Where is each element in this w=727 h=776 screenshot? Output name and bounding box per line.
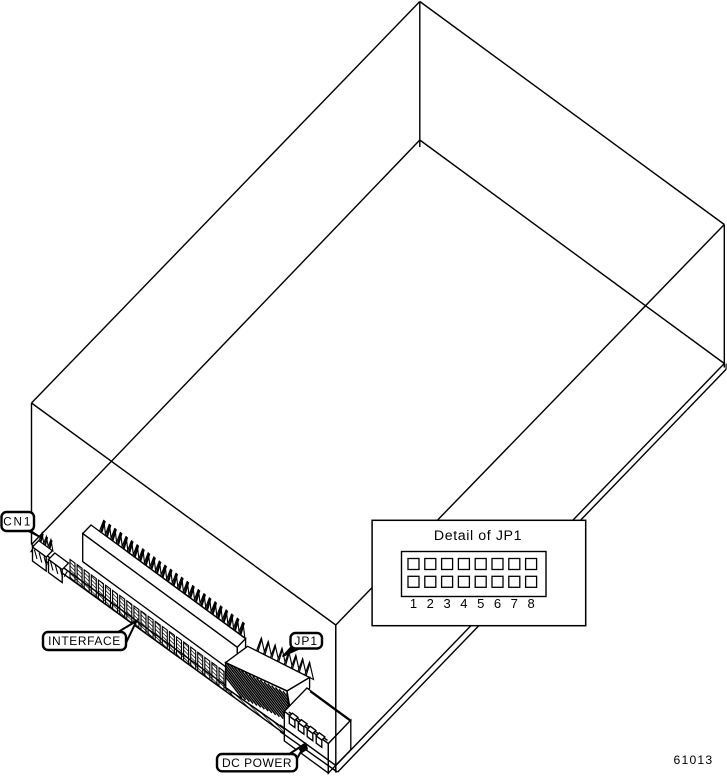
svg-text:1: 1 [410, 596, 417, 611]
svg-text:61013: 61013 [674, 753, 714, 767]
svg-text:Detail of JP1: Detail of JP1 [434, 528, 522, 544]
svg-text:6: 6 [494, 596, 501, 611]
svg-text:7: 7 [511, 596, 518, 611]
svg-text:CN1: CN1 [3, 516, 32, 529]
svg-text:JP1: JP1 [294, 634, 318, 648]
svg-text:2: 2 [427, 596, 434, 611]
svg-text:DC POWER: DC POWER [222, 756, 292, 770]
svg-text:4: 4 [460, 596, 467, 611]
svg-text:3: 3 [443, 596, 450, 611]
svg-text:5: 5 [477, 596, 484, 611]
svg-text:INTERFACE: INTERFACE [48, 634, 121, 648]
svg-text:8: 8 [527, 596, 534, 611]
